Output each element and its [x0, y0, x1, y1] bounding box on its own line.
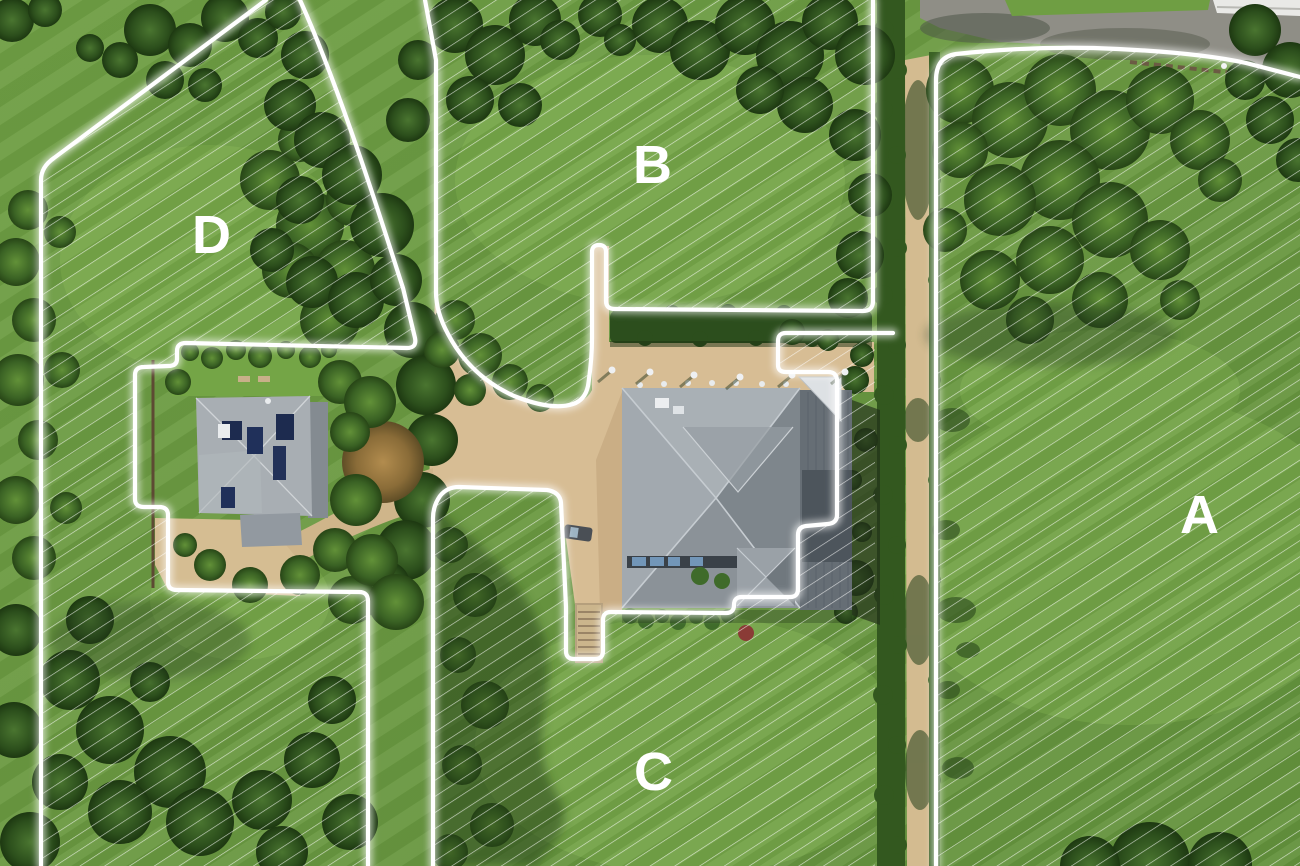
guest-chimney	[218, 424, 230, 438]
aerial-plot-map: A B C D	[0, 0, 1300, 866]
plot-d-label: D	[192, 205, 232, 265]
plot-c-label: C	[634, 742, 674, 802]
plot-a-hatch	[936, 48, 1300, 866]
plot-b-label: B	[633, 135, 673, 195]
guest-annex-roof	[240, 513, 302, 547]
plot-a-label: A	[1180, 485, 1220, 545]
benches	[238, 376, 250, 382]
aerial-photo: A B C D	[0, 0, 1300, 866]
